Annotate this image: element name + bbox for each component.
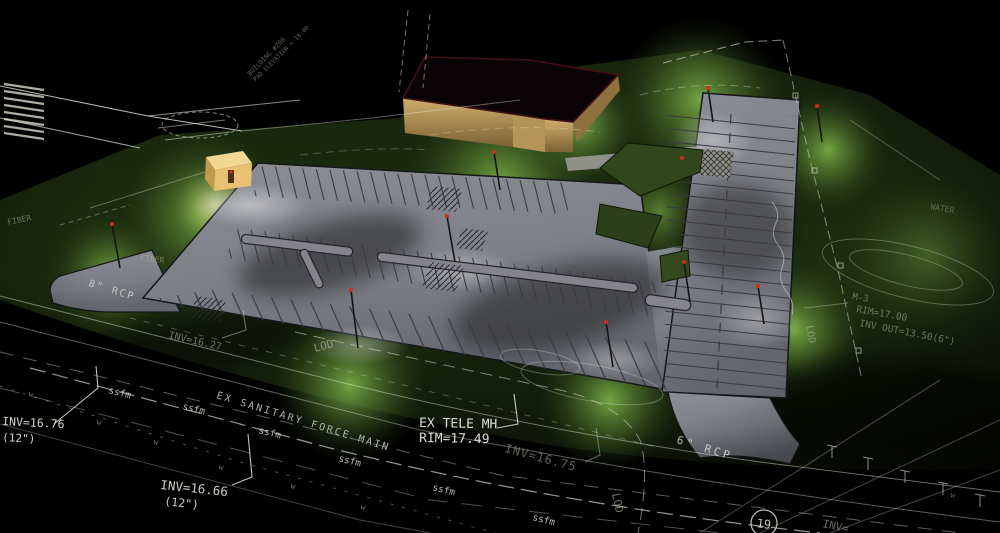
building-vestibule: [513, 114, 545, 152]
light-fixture-marker: [680, 156, 684, 160]
kiosk-light-marker: [229, 170, 232, 173]
site-rendering-viewport: INV=16.76 (12") INV=16.66 (12") EX SANIT…: [0, 0, 1000, 533]
label-route-19: 19: [756, 516, 772, 532]
label-inv-16-76-pipe: (12"): [2, 431, 36, 446]
building-front-wall-right: [545, 119, 573, 152]
label-tele-rim: RIM=17.49: [419, 431, 490, 447]
kiosk-building: [205, 151, 252, 191]
label-tele-mh: EX TELE MH: [419, 416, 498, 432]
site-plan-rendering: INV=16.76 (12") INV=16.66 (12") EX SANIT…: [0, 0, 1000, 533]
